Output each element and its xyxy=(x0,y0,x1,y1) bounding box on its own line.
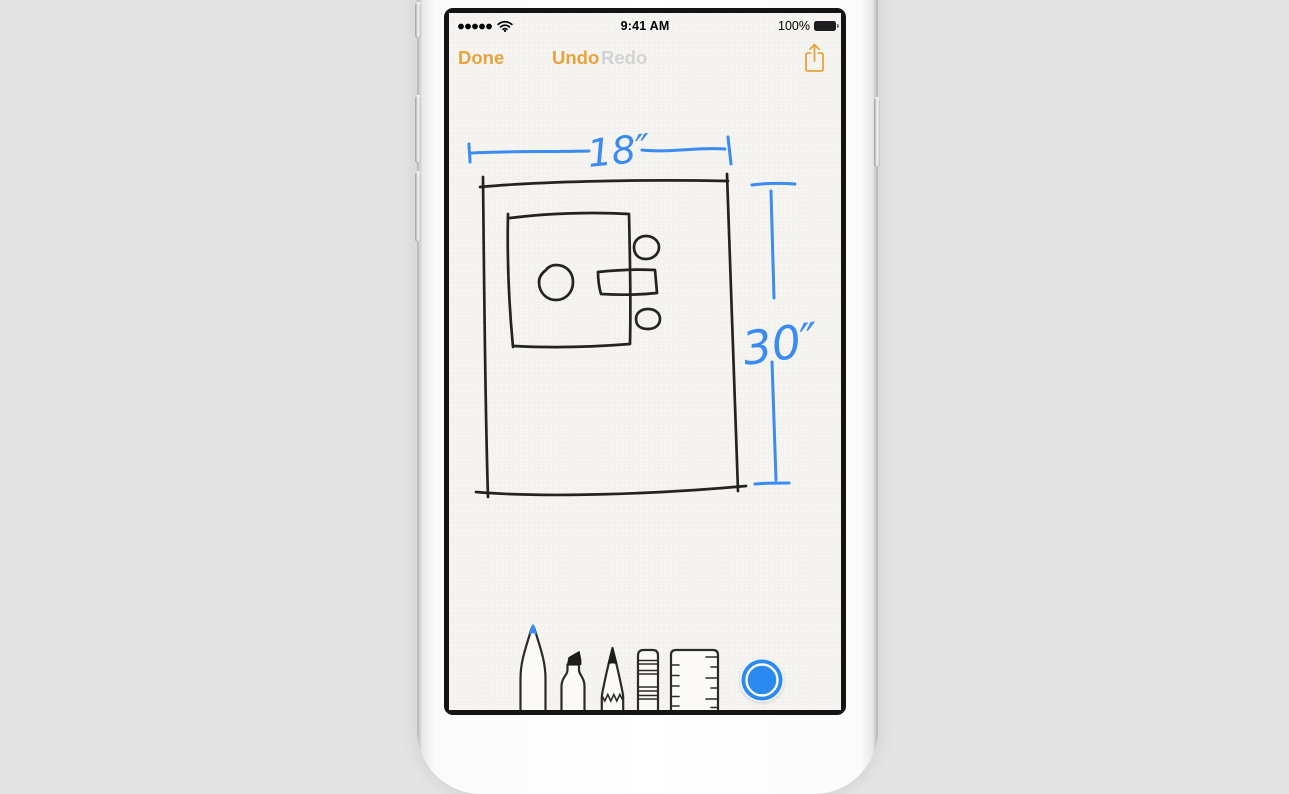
sketch-canvas[interactable]: 18″ 30″ xyxy=(449,13,841,710)
small-oval-bottom xyxy=(636,309,660,329)
outer-rect-left xyxy=(483,177,488,497)
outer-rect-bottom xyxy=(476,486,746,495)
ruler-tool-button[interactable] xyxy=(669,648,720,710)
small-oval-top xyxy=(634,236,659,259)
height-dim-bottom-cap xyxy=(755,483,789,484)
marker-tool-button[interactable] xyxy=(559,650,587,710)
height-dim-top-cap xyxy=(752,183,795,185)
pen-blue-tip xyxy=(530,625,536,634)
black-ink-sketch xyxy=(476,174,746,497)
knob-circle xyxy=(539,265,573,300)
iphone-frame: 9:41 AM 100% Done Undo Redo xyxy=(417,0,878,794)
mute-switch xyxy=(415,2,421,38)
outer-rect-right xyxy=(727,174,738,491)
inner-rect-left xyxy=(508,214,513,347)
outer-rect-top xyxy=(480,180,728,187)
handle-rect xyxy=(598,270,657,295)
volume-down-button xyxy=(415,171,421,242)
width-dim-line-a xyxy=(472,151,589,153)
inner-rect xyxy=(510,213,630,347)
marker-chisel-tip xyxy=(568,652,581,665)
pencil-tool-button[interactable] xyxy=(599,646,626,710)
height-dimension-label: 30″ xyxy=(739,312,821,376)
phone-screen: 9:41 AM 100% Done Undo Redo xyxy=(444,8,846,715)
width-dim-line-b xyxy=(642,149,725,151)
height-dim-line-a xyxy=(771,191,774,298)
color-swatch-button[interactable] xyxy=(740,658,784,702)
width-dim-left-tick xyxy=(469,144,470,162)
height-dim-line-b xyxy=(772,362,776,480)
eraser-tool-button[interactable] xyxy=(636,648,660,710)
width-dimension-label: 18″ xyxy=(585,126,652,176)
volume-up-button xyxy=(415,95,421,163)
pen-tool-button[interactable] xyxy=(518,622,548,710)
notes-sketch-view: 9:41 AM 100% Done Undo Redo xyxy=(449,13,841,710)
power-button xyxy=(874,97,880,167)
width-dim-right-tick xyxy=(728,137,731,164)
